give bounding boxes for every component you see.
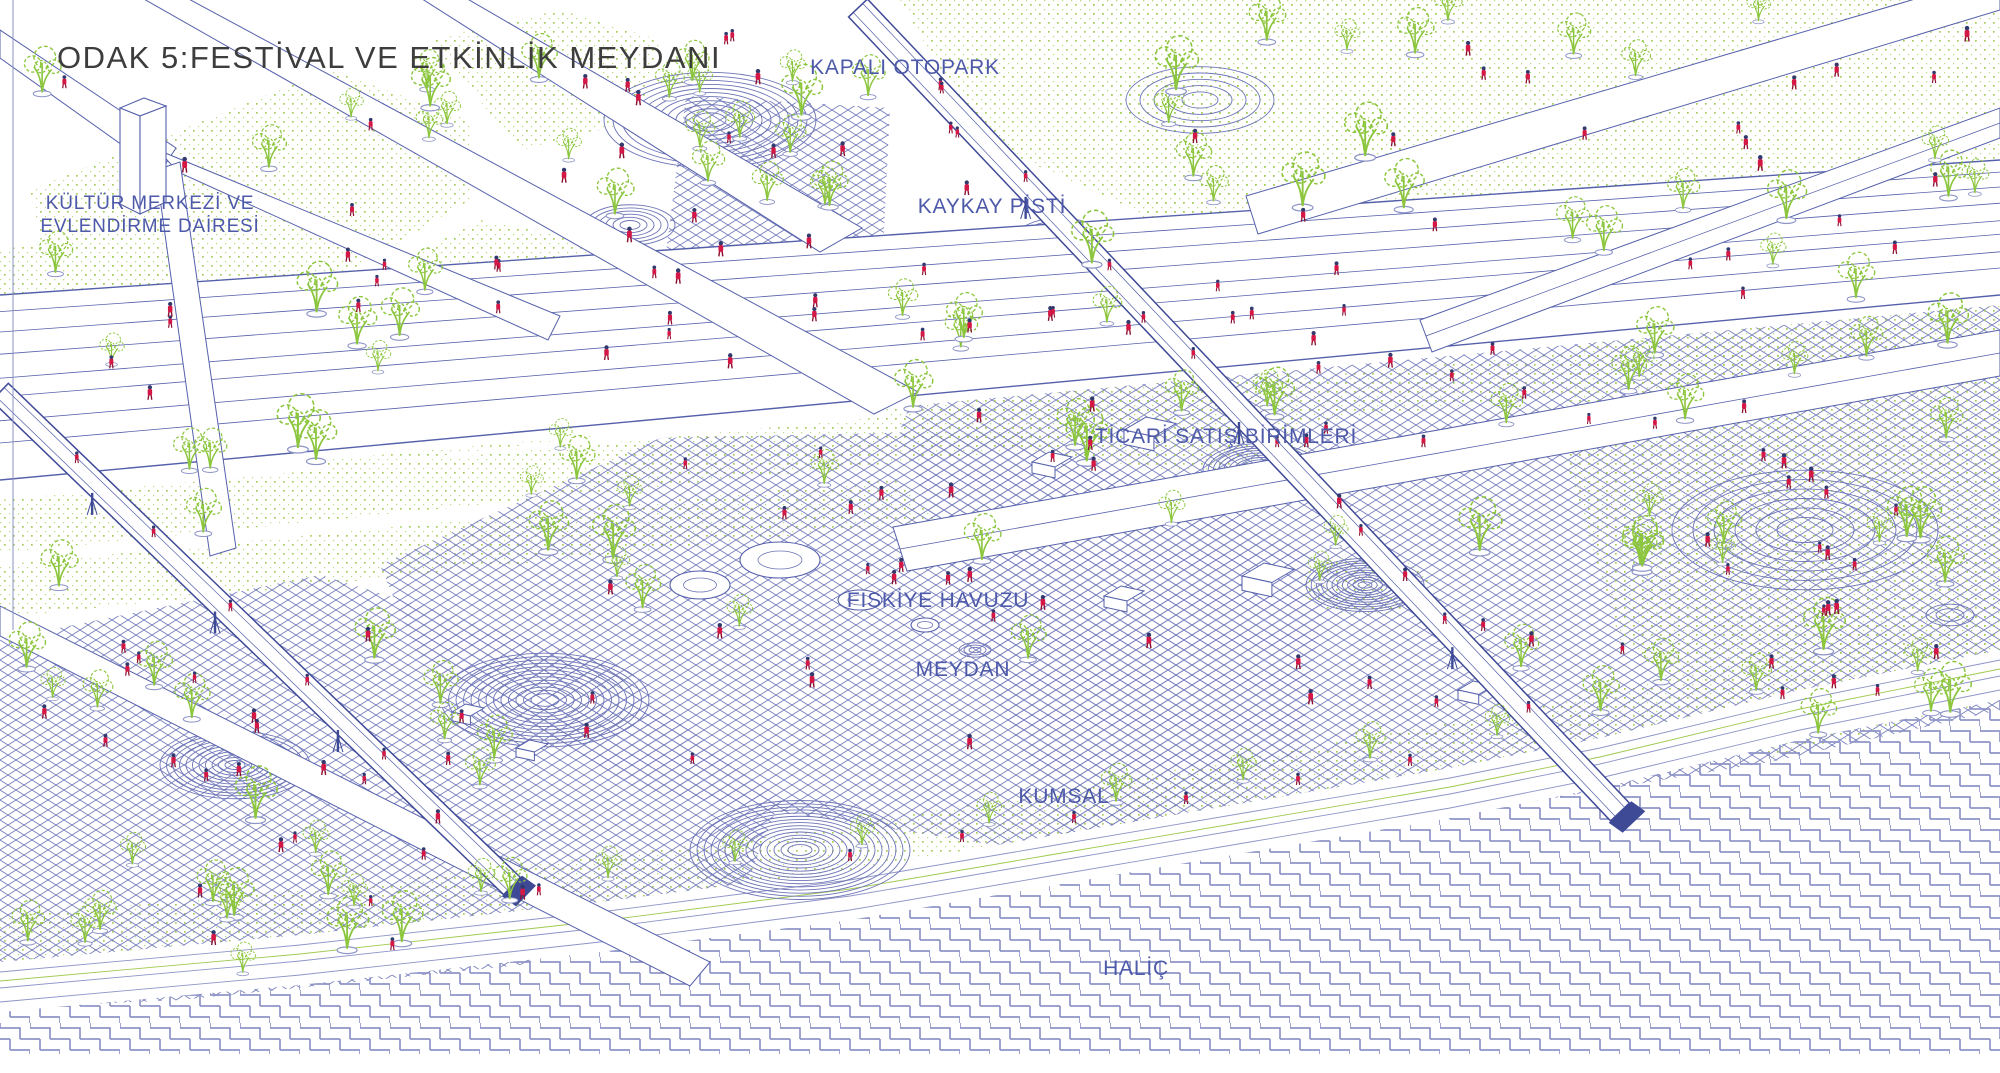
site-plan-drawing (0, 0, 2000, 1073)
site-plan-canvas: ODAK 5:FESTİVAL VE ETKİNLİK MEYDANI KAPA… (0, 0, 2000, 1073)
label-ticari-satis-birimleri: TİCARİ SATIŞ BİRİMLERİ (1095, 425, 1357, 449)
label-meydan: MEYDAN (916, 658, 1011, 682)
page-title: ODAK 5:FESTİVAL VE ETKİNLİK MEYDANI (57, 40, 721, 76)
label-kultur-merkezi-line1: KÜLTÜR MERKEZİ VE (46, 193, 255, 214)
label-kapali-otopark: KAPALI OTOPARK (810, 56, 1000, 80)
label-halic: HALİÇ (1103, 957, 1169, 981)
label-kultur-merkezi-line2: EVLENDİRME DAİRESİ (40, 216, 259, 237)
label-kultur-merkezi: KÜLTÜR MERKEZİ VE EVLENDİRME DAİRESİ (30, 192, 270, 238)
label-kumsal: KUMSAL (1018, 785, 1109, 809)
label-kaykay-pisti: KAYKAY PİSTİ (918, 195, 1067, 219)
label-fiskiye-havuzu: FISKİYE HAVUZU (847, 589, 1029, 613)
